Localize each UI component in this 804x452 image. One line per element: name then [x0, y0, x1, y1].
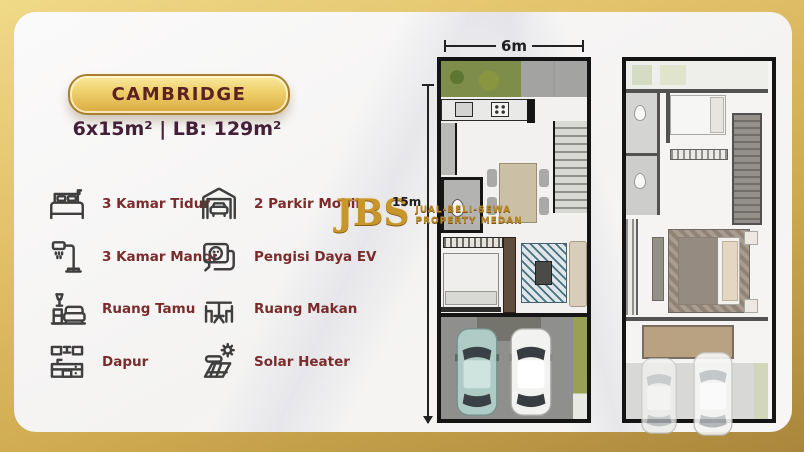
wall-post: [527, 99, 535, 123]
utility-nook: [441, 123, 457, 175]
ground-floor-plan: [437, 57, 591, 423]
feature-solar-heater: Solar Heater: [196, 339, 350, 385]
sofa-icon: [44, 286, 90, 332]
dining-chair: [539, 197, 549, 215]
upper-floor-plan: [622, 57, 776, 423]
title-badge: CAMBRIDGE: [68, 74, 290, 115]
garden-area: [441, 61, 521, 97]
feature-label: Ruang Tamu: [102, 301, 195, 317]
kitchen-sink: [455, 102, 473, 117]
bed-icon: [44, 181, 90, 227]
grass-strip: [573, 317, 587, 419]
feature-label: Dapur: [102, 354, 148, 370]
feature-bedrooms: 3 Kamar Tidur: [44, 181, 210, 227]
coffee-table: [535, 261, 552, 285]
garage-icon: [196, 181, 242, 227]
height-dimension-label: 15m: [392, 195, 421, 209]
feature-ev-charger: Pengisi Daya EV: [196, 234, 377, 280]
kitchen-icon: [44, 339, 90, 385]
shower-icon: [44, 234, 90, 280]
feature-label: Ruang Makan: [254, 301, 357, 317]
bed-pillow: [445, 291, 497, 305]
tv-cabinet: [503, 237, 516, 313]
width-dimension: 6m: [444, 38, 584, 54]
solar-heater-icon: [196, 339, 242, 385]
dining-table-icon: [196, 286, 242, 332]
upper-floor-fade: [626, 61, 772, 419]
wardrobe-hatch: [443, 237, 503, 248]
jbs-logo: JBS JUAL-BELI-SEWA PROPERTY MEDAN: [336, 193, 523, 233]
feature-label: Pengisi Daya EV: [254, 249, 377, 265]
brochure-canvas: CAMBRIDGE 6x15m² | LB: 129m² 3 Kamar Tid…: [0, 0, 804, 452]
bed-headboard: [441, 307, 501, 312]
width-dimension-label: 6m: [496, 37, 532, 55]
jbs-logo-line2: PROPERTY MEDAN: [415, 216, 522, 227]
feature-living-room: Ruang Tamu: [44, 286, 195, 332]
feature-kitchen: Dapur: [44, 339, 148, 385]
car-white: [507, 327, 555, 417]
dining-chair: [539, 169, 549, 187]
feature-dining-room: Ruang Makan: [196, 286, 357, 332]
feature-label: Solar Heater: [254, 354, 350, 370]
jbs-logo-line1: JUAL-BELI-SEWA: [415, 205, 522, 216]
dining-chair: [487, 169, 497, 187]
size-specs: 6x15m² | LB: 129m²: [58, 118, 296, 140]
car-teal: [453, 327, 501, 417]
feature-label: 3 Kamar Tidur: [102, 196, 210, 212]
height-dimension: [421, 84, 435, 423]
sofa: [569, 241, 587, 307]
stairs: [553, 121, 587, 213]
feature-bathrooms: 3 Kamar Mandi: [44, 234, 217, 280]
house-type-title: CAMBRIDGE: [112, 84, 247, 105]
kitchen-stove: [491, 102, 509, 117]
concrete-pad: [521, 61, 587, 97]
ev-charger-icon: [196, 234, 242, 280]
